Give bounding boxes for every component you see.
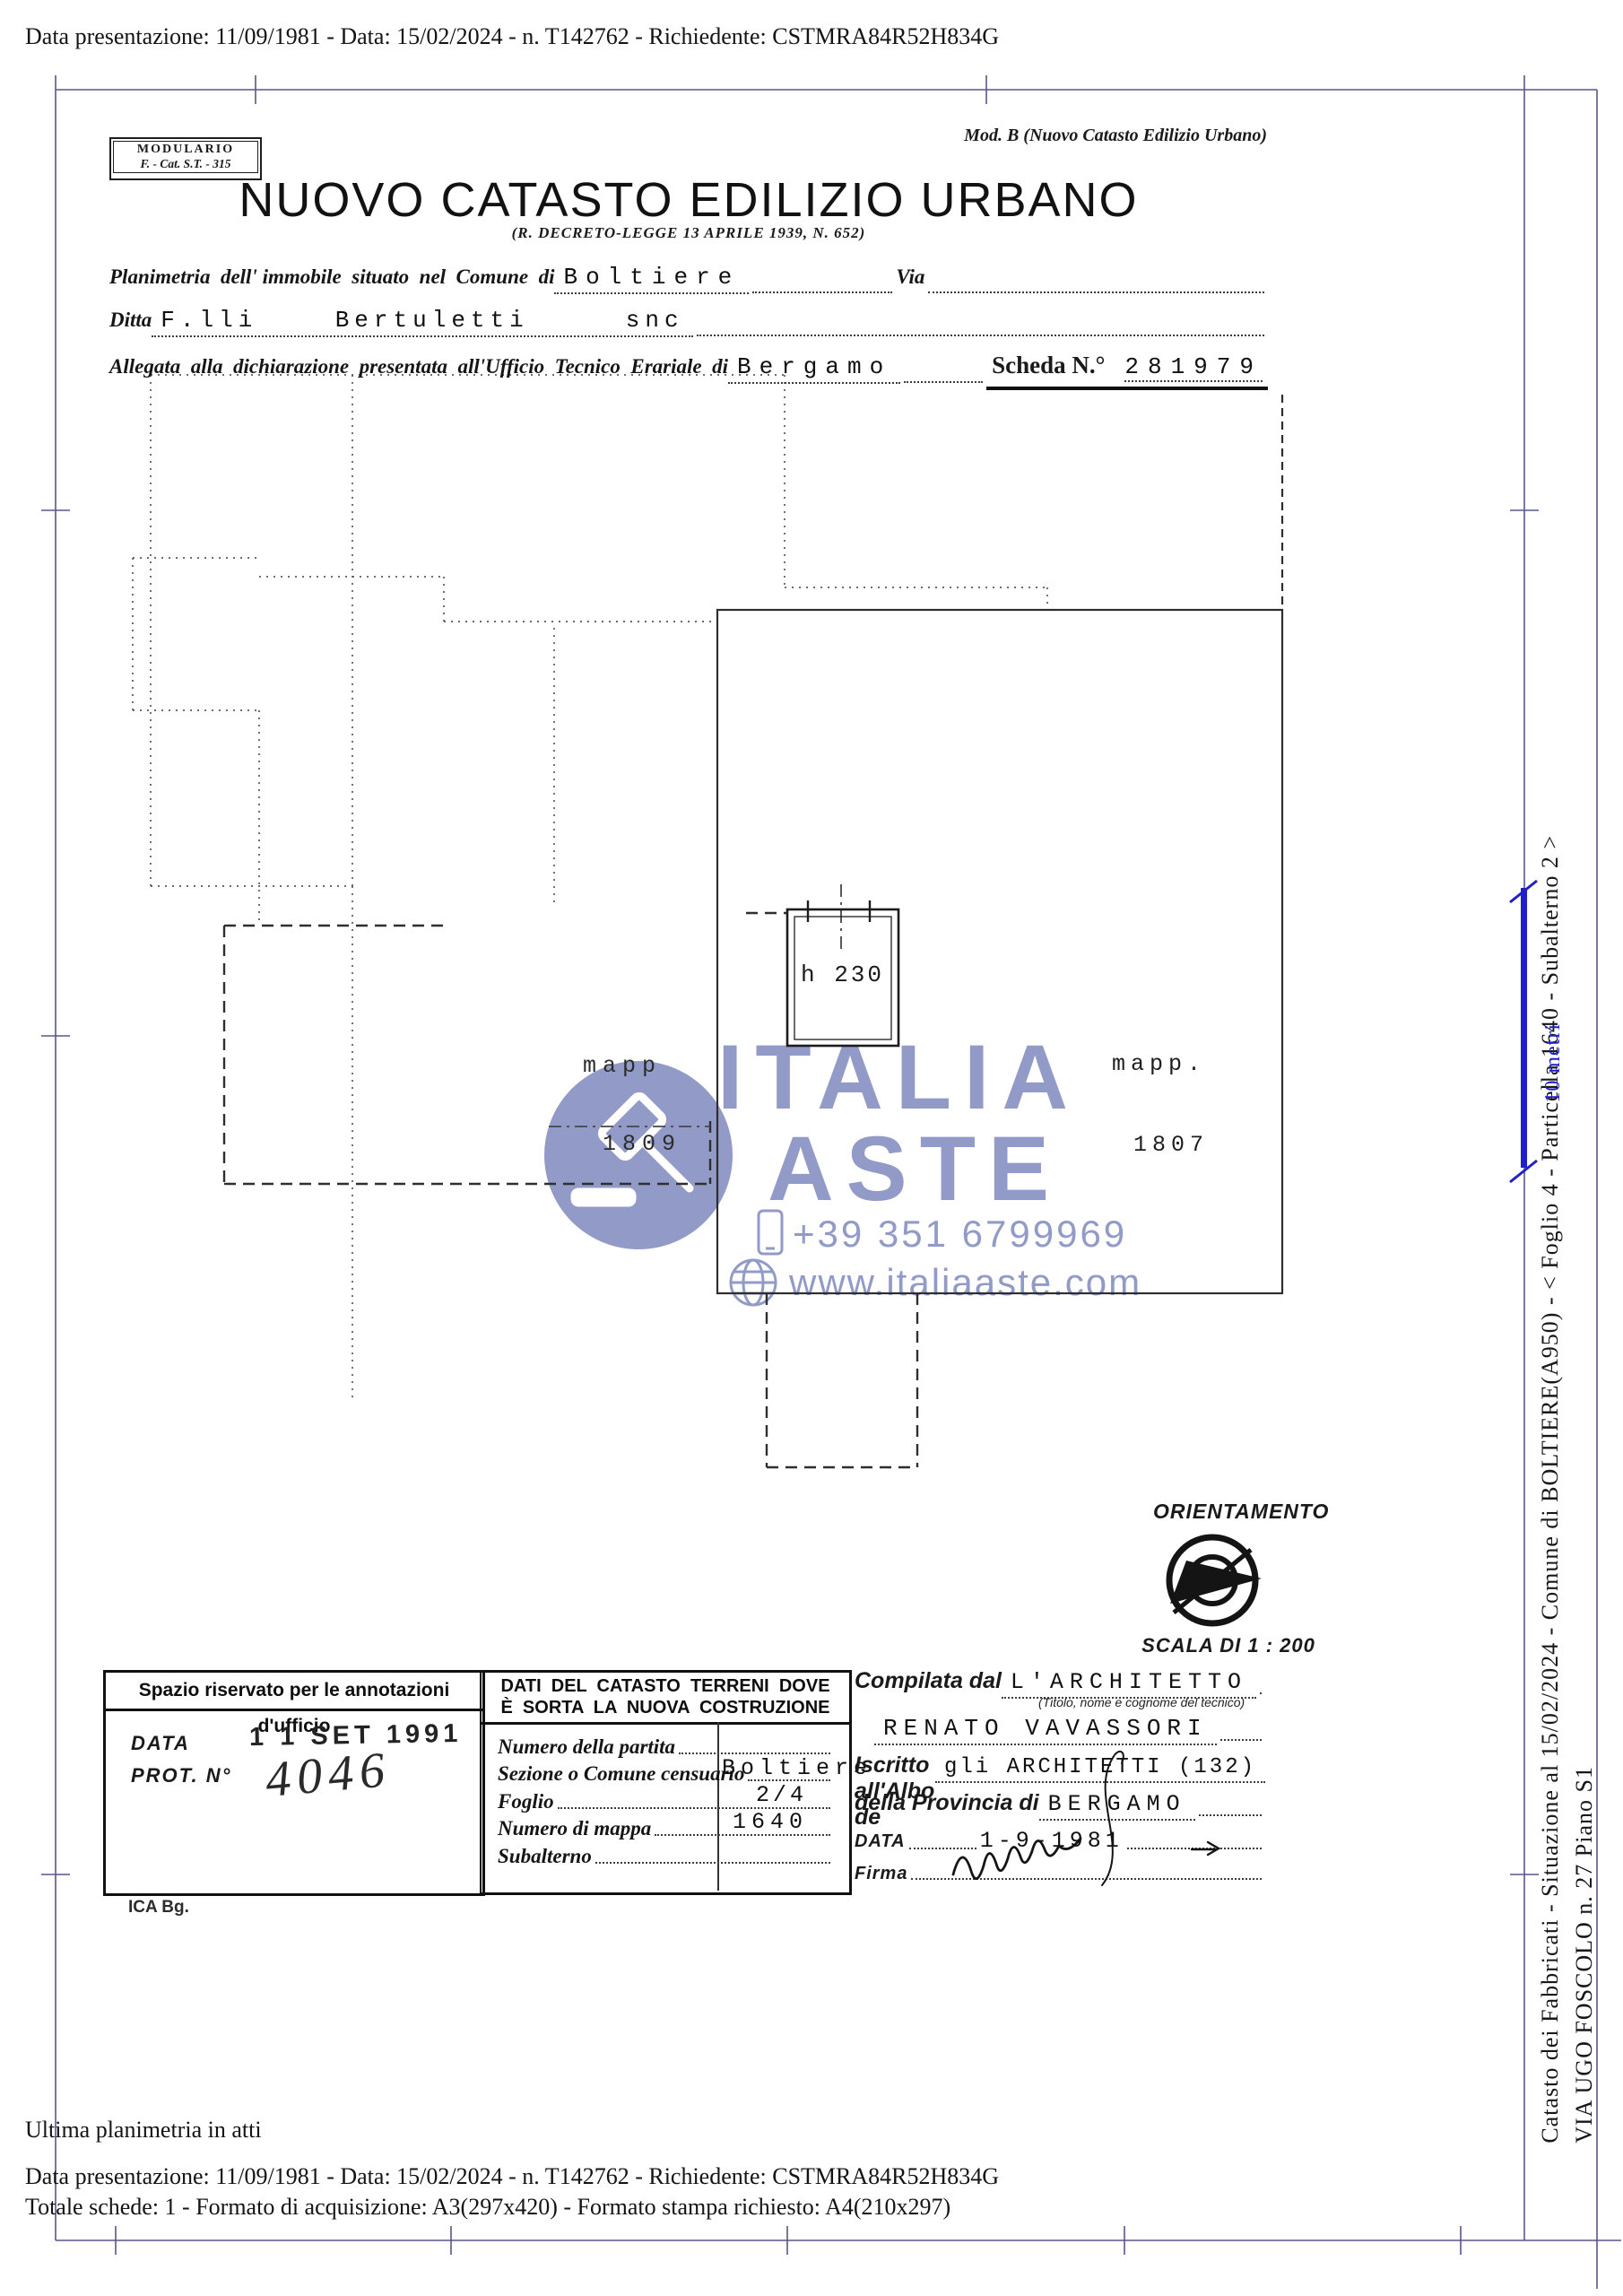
mapp-1807-label: mapp. 1807 bbox=[1112, 997, 1225, 1213]
catasto-box-header-line2: È SORTA LA NUOVA COSTRUZIONE bbox=[482, 1697, 849, 1718]
page-title: NUOVO CATASTO EDILIZIO URBANO bbox=[109, 172, 1268, 228]
page-subtitle: (R. DECRETO-LEGGE 13 APRILE 1939, N. 652… bbox=[109, 224, 1268, 242]
mapp-1809-label: mapp 1809 bbox=[583, 1001, 701, 1209]
ditta-label: Ditta bbox=[109, 309, 152, 332]
tecnico-box: Compilata dal L'ARCHITETTO (Titolo, nome… bbox=[855, 1668, 1265, 1901]
ica-label: ICA Bg. bbox=[128, 1898, 189, 1918]
catasto-value-comune: Boltiere bbox=[722, 1755, 872, 1781]
orientamento-label: ORIENTAMENTO bbox=[1153, 1500, 1306, 1524]
prot-label: PROT. N° bbox=[131, 1764, 231, 1787]
room-height-label: h 230 bbox=[801, 961, 884, 988]
scheda-group: Scheda N.° 281979 bbox=[986, 352, 1268, 390]
document-page: ITALIA ASTE +39 351 6799969 www.italiaas… bbox=[0, 0, 1623, 2296]
modulario-line1: MODULARIO bbox=[114, 142, 257, 157]
catasto-box: DATI DEL CATASTO TERRENI DOVE È SORTA LA… bbox=[480, 1670, 852, 1895]
scan-top-line: Data presentazione: 11/09/1981 - Data: 1… bbox=[25, 23, 999, 50]
scan-footer-line1: Ultima planimetria in atti bbox=[25, 2117, 262, 2144]
leader-line bbox=[904, 380, 983, 383]
scan-footer-line3: Totale schede: 1 - Formato di acquisizio… bbox=[25, 2194, 950, 2221]
scheda-value: 281979 bbox=[1124, 353, 1263, 382]
scala-label: SCALA DI 1 : 200 bbox=[1139, 1634, 1318, 1657]
catasto-box-header-line1: DATI DEL CATASTO TERRENI DOVE bbox=[482, 1675, 849, 1697]
modulario-line2: F. - Cat. S.T. - 315 bbox=[114, 157, 257, 170]
ufficio-value: Bergamo bbox=[728, 353, 900, 384]
leader-line bbox=[697, 334, 1264, 336]
data-label: DATA bbox=[131, 1732, 190, 1755]
tecnico-caption: (Titolo, nome e cognome del tecnico) bbox=[1038, 1695, 1245, 1709]
allegata-row: Allegata alla dichiarazione presentata a… bbox=[109, 352, 1268, 387]
catasto-value-mappa: 1640 bbox=[733, 1809, 808, 1835]
planimetria-label: Planimetria dell' immobile situato nel C… bbox=[109, 265, 554, 289]
comune-value: Boltiere bbox=[554, 264, 749, 294]
leader-line bbox=[752, 291, 892, 293]
scan-footer-line2: Data presentazione: 11/09/1981 - Data: 1… bbox=[25, 2163, 999, 2190]
catasto-value-foglio: 2/4 bbox=[756, 1782, 807, 1808]
firma-label: Firma bbox=[855, 1864, 907, 1884]
compilata-label: Compilata dal bbox=[855, 1668, 1002, 1694]
signature-scribble bbox=[926, 1740, 1267, 1901]
catasto-field-row: Subalterno bbox=[498, 1845, 834, 1868]
leader-line bbox=[928, 291, 1264, 293]
via-label: Via bbox=[896, 265, 924, 289]
allegata-label: Allegata alla dichiarazione presentata a… bbox=[109, 355, 728, 378]
mod-b-label: Mod. B (Nuovo Catasto Edilizio Urbano) bbox=[953, 126, 1267, 146]
planimetria-row: Planimetria dell' immobile situato nel C… bbox=[109, 264, 1268, 298]
sidebar-vertical-line2: VIA UGO FOSCOLO n. 27 Piano S1 bbox=[1571, 1766, 1598, 2144]
annotations-box: Spazio riservato per le annotazioni d'uf… bbox=[103, 1670, 485, 1896]
scale-bar-label: 10 metri bbox=[1541, 1023, 1566, 1103]
ditta-value: F.lli Bertuletti snc bbox=[152, 307, 692, 337]
annotations-box-header: Spazio riservato per le annotazioni d'uf… bbox=[106, 1673, 482, 1711]
scheda-label: Scheda N.° bbox=[992, 352, 1105, 379]
ditta-row: Ditta F.lli Bertuletti snc bbox=[109, 307, 1268, 341]
prot-value-handwritten: 4046 bbox=[263, 1741, 393, 1809]
tecnico-data-label: DATA bbox=[855, 1831, 906, 1852]
